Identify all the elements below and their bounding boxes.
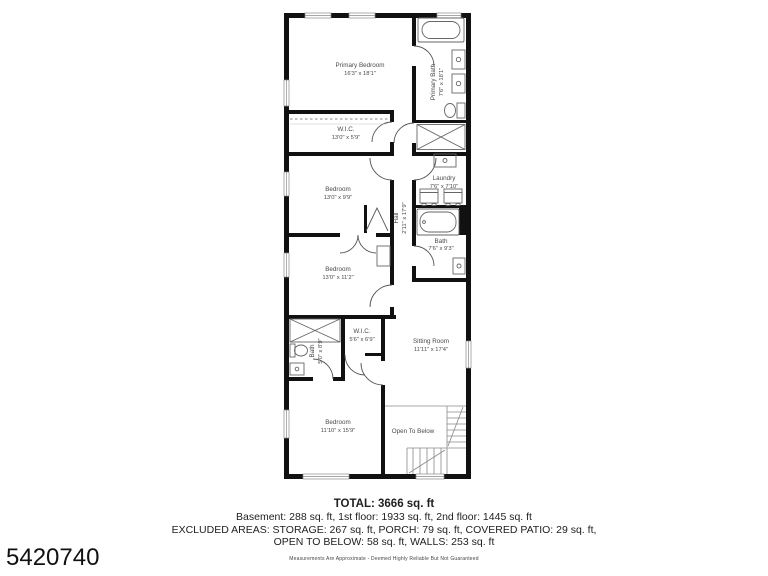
- vanity-sink-icon: [453, 258, 465, 274]
- vanity-sink-icon: [452, 50, 465, 93]
- disclaimer-text: Measurements Are Approximate - Deemed Hi…: [0, 556, 768, 562]
- room-labels: Primary Bedroom 16'3" x 18'1" Primary Ba…: [309, 62, 458, 435]
- sink-icon: [290, 363, 304, 375]
- floorplan-page: Primary Bedroom 16'3" x 18'1" Primary Ba…: [0, 0, 768, 576]
- room-label-bedroom-2: Bedroom 13'0" x 9'9": [324, 186, 353, 201]
- svg-text:Bedroom: Bedroom: [325, 186, 351, 193]
- svg-text:Primary Bath: Primary Bath: [430, 63, 437, 100]
- room-label-open-to-below: Open To Below: [392, 428, 435, 435]
- svg-text:7'6" x 18'1": 7'6" x 18'1": [439, 68, 445, 97]
- bathtub-icon: [417, 209, 459, 235]
- room-label-primary-bath: Primary Bath 7'6" x 18'1": [430, 63, 445, 100]
- room-label-bedroom-4: Bedroom 11'10" x 15'9": [321, 419, 356, 434]
- svg-text:13'0" x 11'2": 13'0" x 11'2": [322, 275, 353, 281]
- svg-text:7'6" x 7'10": 7'6" x 7'10": [430, 184, 459, 190]
- svg-text:Primary Bedroom: Primary Bedroom: [336, 62, 385, 69]
- listing-id: 5420740: [6, 544, 99, 572]
- door-arcs: [313, 46, 436, 385]
- room-label-hall: Hall 2'11" x 17'9": [393, 202, 408, 233]
- stairs: [385, 406, 466, 474]
- excluded-areas-line: EXCLUDED AREAS: STORAGE: 267 sq. ft, POR…: [0, 524, 768, 537]
- floor-areas-line: Basement: 288 sq. ft, 1st floor: 1933 sq…: [0, 511, 768, 524]
- svg-text:7'6" x 9'3": 7'6" x 9'3": [428, 246, 453, 252]
- room-label-sitting-room: Sitting Room 11'11" x 17'4": [413, 338, 449, 353]
- svg-text:16'3" x 18'1": 16'3" x 18'1": [344, 71, 376, 77]
- room-label-bedroom-3: Bedroom 13'0" x 11'2": [322, 266, 353, 281]
- bifold-closet-doors: [366, 208, 388, 231]
- svg-text:Bedroom: Bedroom: [325, 266, 351, 273]
- room-label-primary-bedroom: Primary Bedroom 16'3" x 18'1": [336, 62, 385, 77]
- svg-text:13'0" x 9'9": 13'0" x 9'9": [324, 195, 353, 201]
- total-area: TOTAL: 3666 sq. ft: [0, 498, 768, 511]
- svg-text:2'11" x 17'9": 2'11" x 17'9": [402, 202, 408, 233]
- svg-text:Bath: Bath: [309, 344, 316, 357]
- svg-text:11'11" x 17'4": 11'11" x 17'4": [414, 347, 448, 353]
- excluded-areas-line-2: OPEN TO BELOW: 58 sq. ft, WALLS: 253 sq.…: [0, 536, 768, 549]
- bathtub-icon: [418, 18, 464, 42]
- toilet-icon: [445, 103, 466, 118]
- svg-text:Bedroom: Bedroom: [325, 419, 351, 426]
- toilet-icon: [290, 344, 308, 357]
- svg-text:5'6" x 6'9": 5'6" x 6'9": [349, 337, 374, 343]
- room-label-wic-upper: W.I.C. 13'0" x 5'9": [332, 126, 361, 141]
- dresser-icon: [377, 246, 390, 266]
- svg-text:Hall: Hall: [393, 213, 400, 224]
- svg-text:Laundry: Laundry: [433, 175, 457, 182]
- svg-text:Bath: Bath: [435, 238, 448, 245]
- closet-x-icon: [417, 125, 465, 150]
- room-label-laundry: Laundry 7'6" x 7'10": [430, 175, 459, 190]
- area-summary: TOTAL: 3666 sq. ft Basement: 288 sq. ft,…: [0, 498, 768, 562]
- svg-text:11'10" x 15'9": 11'10" x 15'9": [321, 428, 356, 434]
- washer-dryer-icon: [420, 189, 462, 206]
- floorplan-drawing: Primary Bedroom 16'3" x 18'1" Primary Ba…: [0, 0, 768, 576]
- closet-rod-icon: [290, 119, 388, 124]
- room-label-wic-lower: W.I.C. 5'6" x 6'9": [349, 328, 374, 343]
- svg-text:5'0" x 8'9": 5'0" x 8'9": [318, 338, 324, 363]
- room-label-bath-hall: Bath 7'6" x 9'3": [428, 238, 453, 252]
- svg-text:13'0" x 5'9": 13'0" x 5'9": [332, 135, 361, 141]
- svg-text:Sitting Room: Sitting Room: [413, 338, 449, 345]
- svg-text:W.I.C.: W.I.C.: [353, 328, 370, 335]
- svg-text:W.I.C.: W.I.C.: [337, 126, 354, 133]
- shower-x-icon: [290, 319, 340, 342]
